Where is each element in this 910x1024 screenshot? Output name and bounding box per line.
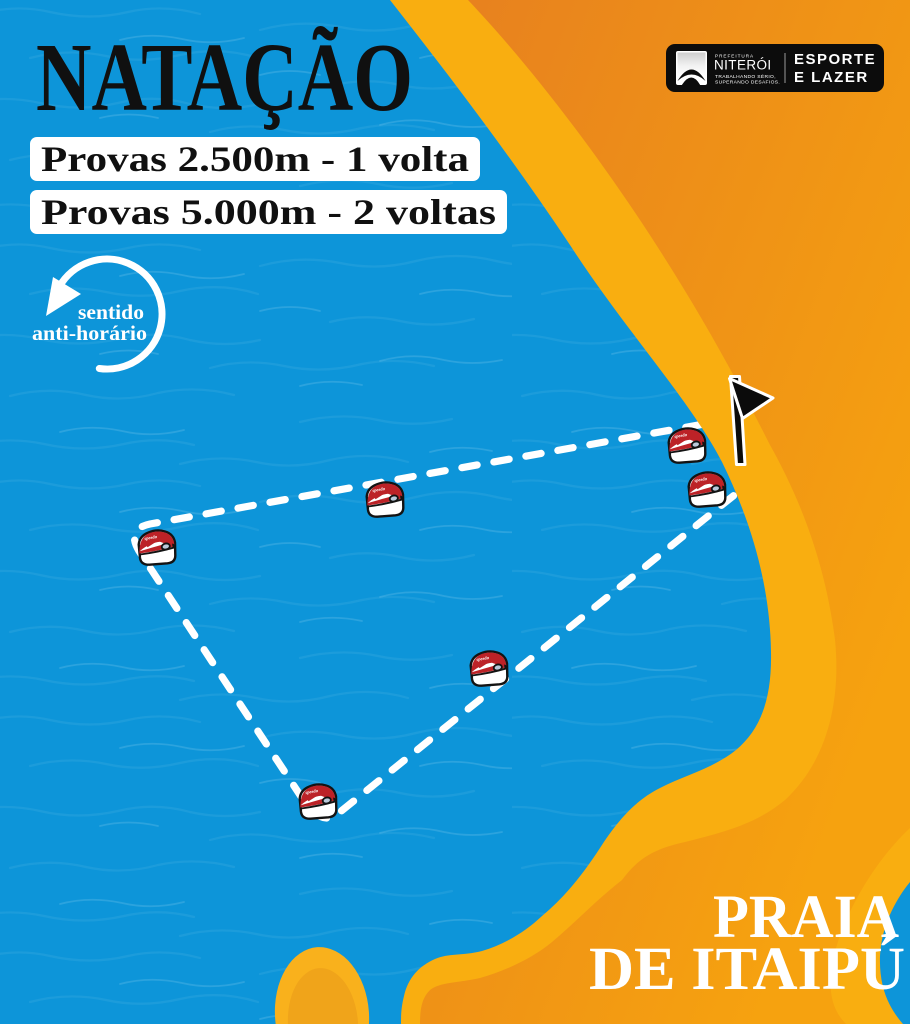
svg-text:Provas 5.000m - 2 voltas: Provas 5.000m - 2 voltas xyxy=(41,192,496,232)
svg-text:TRABALHANDO SÉRIO,: TRABALHANDO SÉRIO, xyxy=(715,73,776,80)
svg-text:NATAÇÃO: NATAÇÃO xyxy=(36,24,413,131)
svg-text:E LAZER: E LAZER xyxy=(794,69,869,86)
svg-text:SUPERANDO DESAFIOS.: SUPERANDO DESAFIOS. xyxy=(715,79,780,85)
svg-text:NITERÓI: NITERÓI xyxy=(714,58,772,73)
svg-text:Provas 2.500m - 1 volta: Provas 2.500m - 1 volta xyxy=(41,139,469,179)
svg-text:anti-horário: anti-horário xyxy=(32,321,147,345)
svg-text:ESPORTE: ESPORTE xyxy=(794,51,876,68)
svg-text:DE ITAIPÚ: DE ITAIPÚ xyxy=(589,936,905,1003)
